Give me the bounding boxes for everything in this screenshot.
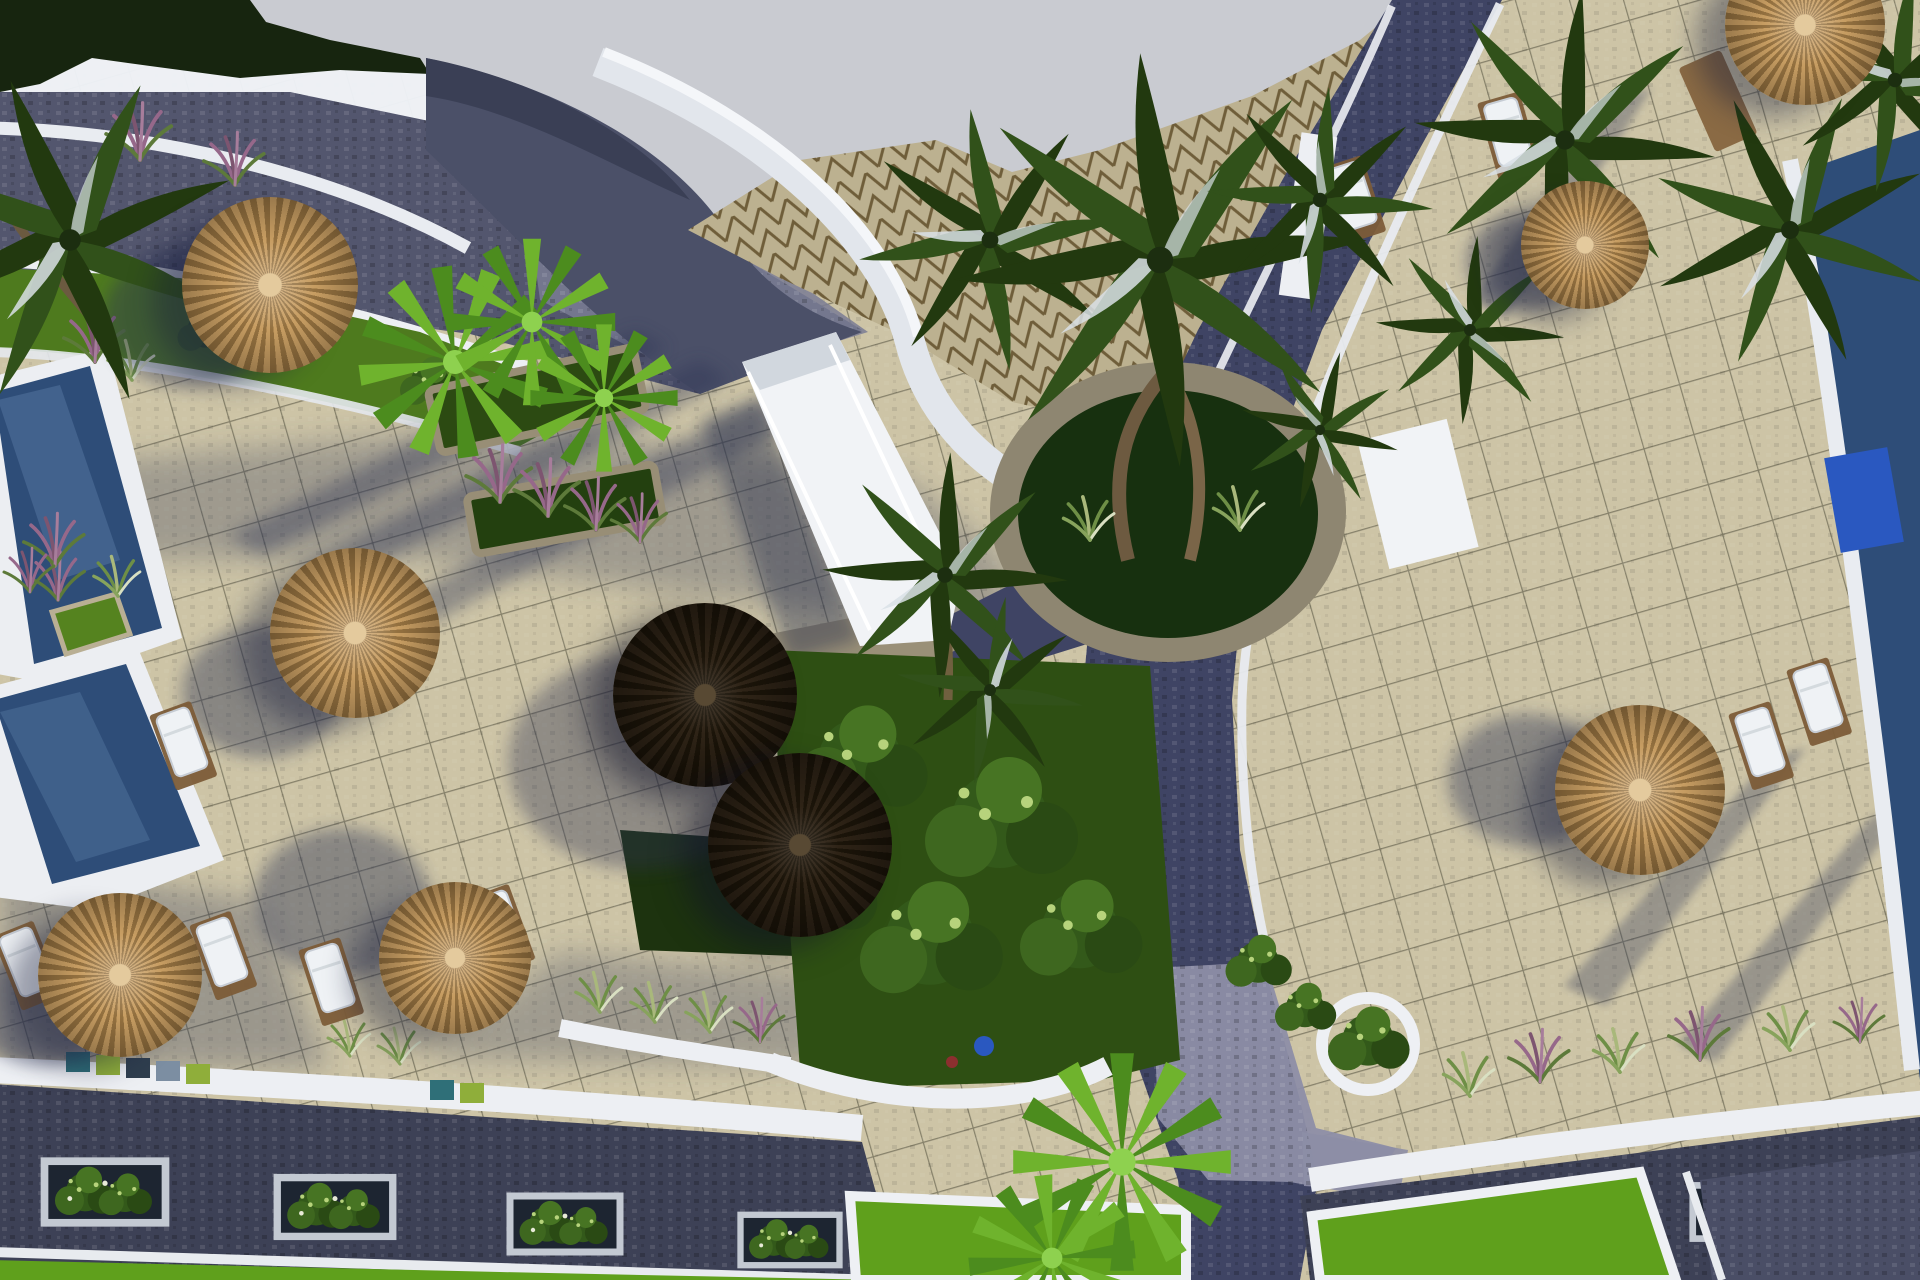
red-pot (946, 1056, 958, 1068)
shaded-parasol (708, 753, 892, 937)
aerial-render-scene (0, 0, 1920, 1280)
straw-parasol (1555, 705, 1725, 875)
planter-box (510, 1196, 620, 1252)
planter-box (277, 1178, 393, 1237)
planter-box (45, 1161, 166, 1223)
straw-parasol (38, 893, 202, 1057)
blue-pot (974, 1036, 994, 1056)
straw-parasol (270, 548, 440, 718)
straw-parasol (182, 197, 358, 373)
planter-box (741, 1215, 840, 1265)
straw-parasol (1521, 181, 1649, 309)
straw-parasol (379, 882, 531, 1034)
